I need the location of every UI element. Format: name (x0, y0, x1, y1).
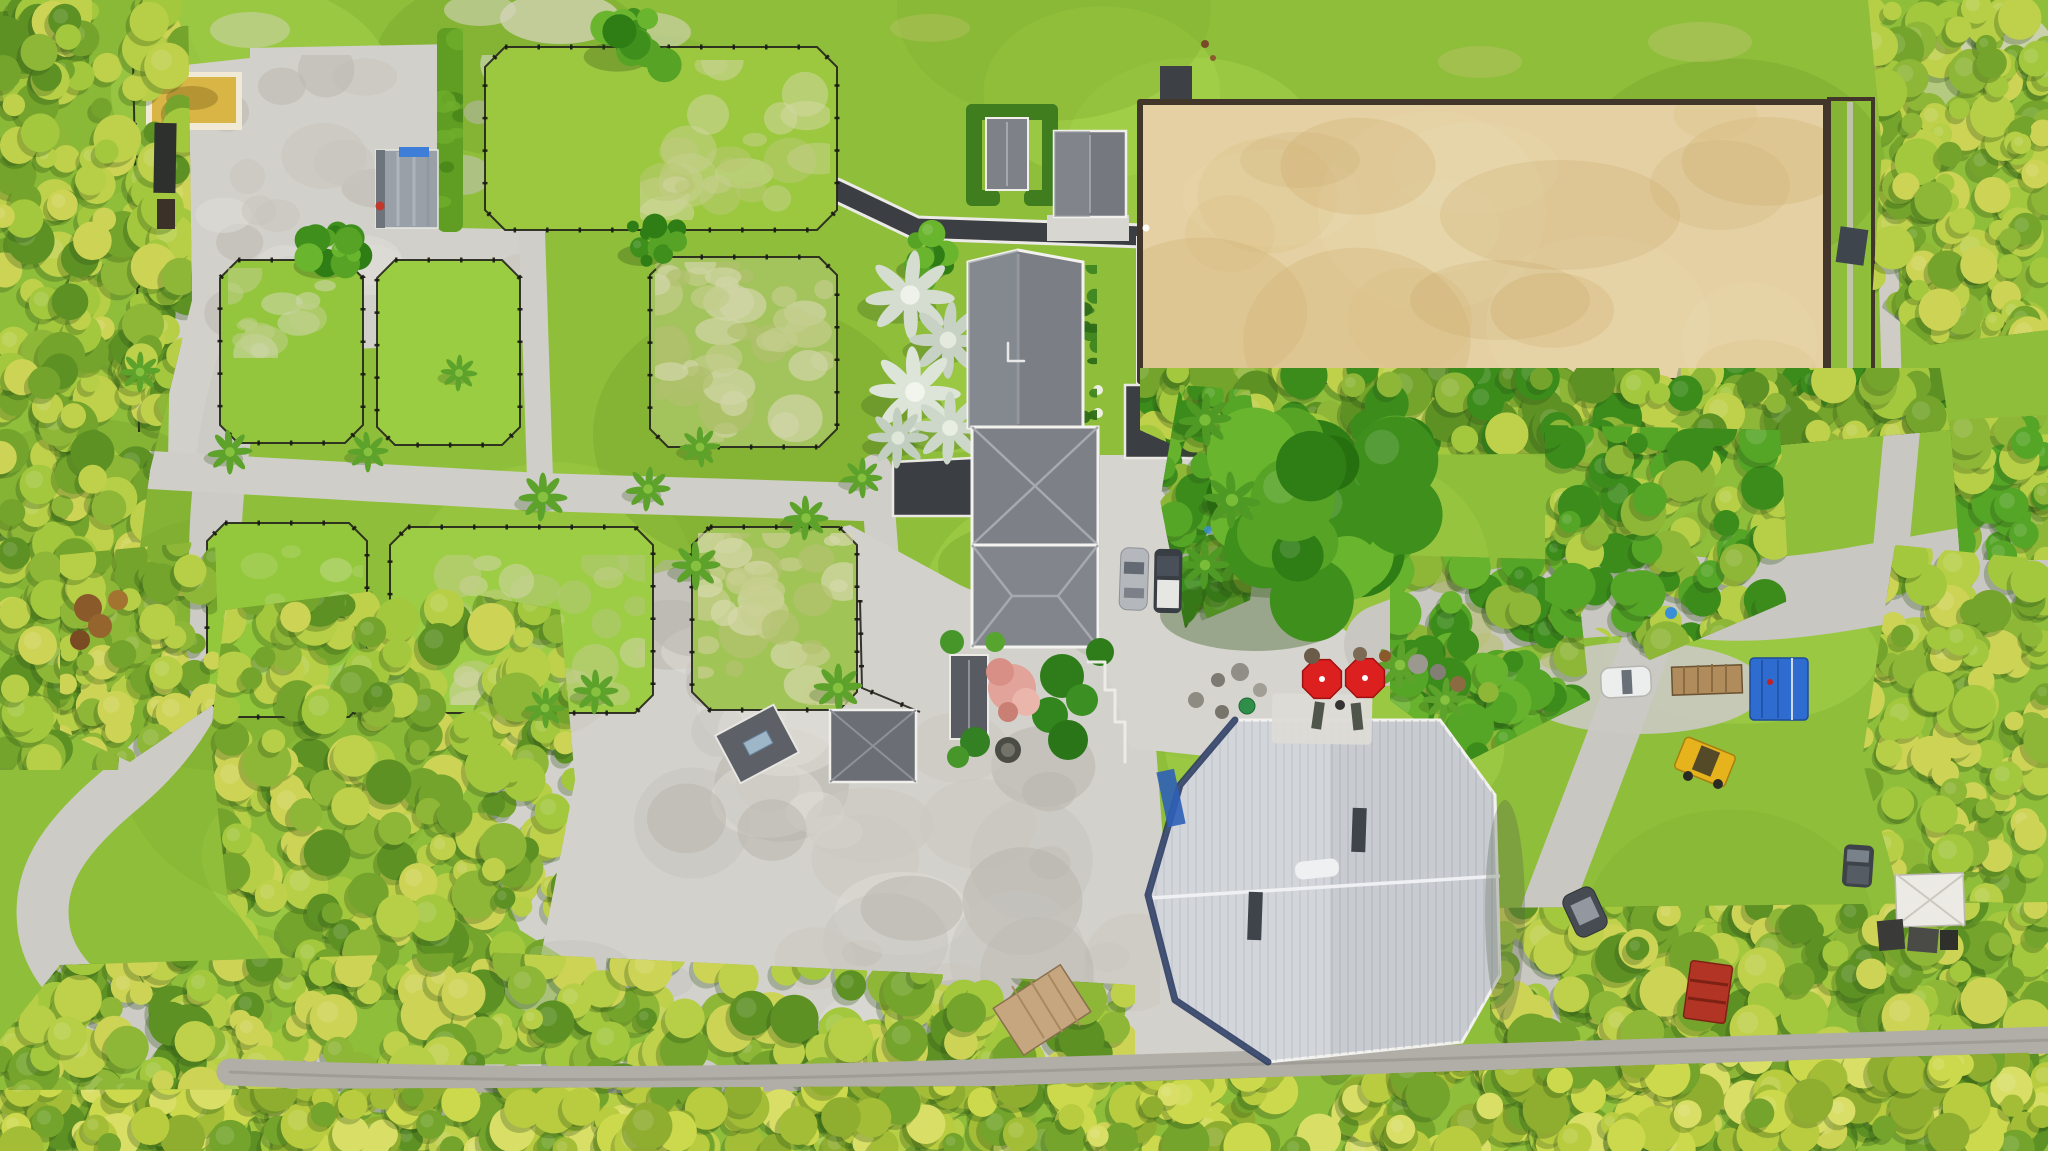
dry-patch (1648, 22, 1752, 62)
skid-wheel (1683, 771, 1693, 781)
red-bush (88, 614, 112, 638)
garden-bush (1048, 720, 1088, 760)
red-bush (108, 590, 128, 610)
silver-car-rear (1124, 588, 1144, 599)
pavilion-light (1054, 131, 1090, 217)
pickup-right-bed (1846, 865, 1869, 884)
aerial-photo (0, 0, 2048, 1151)
arena-swirl (1240, 132, 1360, 188)
pickup-bed (1157, 580, 1179, 608)
clutter (1450, 676, 1466, 692)
blue-speck (1665, 607, 1677, 619)
garden-bush (947, 746, 969, 768)
barn-shadow-east (1485, 800, 1525, 1020)
dry-patch (890, 14, 970, 42)
parking-shed-dark-edge (376, 150, 385, 228)
clutter (1231, 663, 1249, 681)
dry-patch (1438, 46, 1522, 78)
clutter (1408, 654, 1428, 674)
blue-speck (1204, 526, 1212, 534)
entry-asphalt-west (893, 458, 973, 516)
pink-bush (998, 702, 1018, 722)
paddock (377, 260, 520, 445)
umbrella-center (1362, 675, 1368, 681)
fire-pit-inner (1001, 743, 1015, 757)
col-path (532, 232, 540, 478)
aerial-photo-canvas (0, 0, 2048, 1151)
umbrella-center (1319, 676, 1325, 682)
clutter (1211, 673, 1225, 687)
clutter (1379, 650, 1391, 662)
suv-windshield (1621, 670, 1632, 694)
brown-speck (1210, 55, 1216, 61)
silver-car (1119, 548, 1149, 611)
pavilion-apron (1047, 215, 1129, 241)
brown-speck (1201, 40, 1209, 48)
clutter (1188, 692, 1204, 708)
clutter (1253, 683, 1267, 697)
dry-patch (210, 12, 290, 48)
barn-vent (1247, 892, 1263, 940)
red-implement (1683, 960, 1733, 1023)
garden-bush (940, 630, 964, 654)
clutter (1304, 648, 1320, 664)
bench (153, 123, 176, 193)
pink-bush (986, 658, 1014, 686)
clutter (1215, 705, 1229, 719)
patio-table (1335, 700, 1345, 710)
shed-hedge-stub (966, 190, 1000, 206)
barn-vent (1351, 808, 1367, 852)
dark-equipment (1907, 927, 1939, 954)
tarp-red-dot (1767, 679, 1773, 685)
bench (157, 199, 175, 229)
red-bush (70, 630, 90, 650)
pickup-right-cab (1847, 849, 1870, 863)
dark-equipment (1877, 919, 1906, 951)
silver-car-windshield (1124, 562, 1144, 575)
house-north-west-light (968, 250, 1018, 428)
arena-swirl (1410, 260, 1590, 340)
dark-equipment (1940, 930, 1958, 950)
clutter (1353, 647, 1367, 661)
green-barrel (1239, 698, 1255, 714)
skid-wheel (1713, 779, 1723, 789)
white-bird (1143, 225, 1150, 232)
flatbed-trailer (1672, 665, 1743, 695)
parking-shed-tarp (399, 147, 429, 157)
arena-east-canopy (1836, 226, 1869, 266)
clutter (1430, 664, 1446, 680)
garden-bush (985, 632, 1005, 652)
parking-shed-reditem (376, 202, 385, 211)
arena-swirl (1650, 140, 1790, 230)
pickup-cab (1157, 556, 1179, 576)
garden-bush (1066, 684, 1098, 716)
arena-swirl (1440, 160, 1680, 270)
